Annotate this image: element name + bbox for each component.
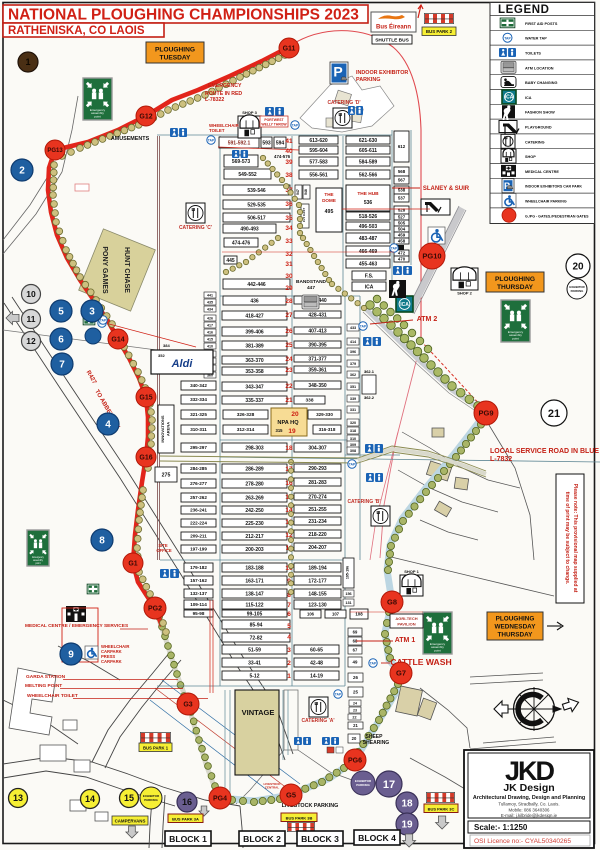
- svg-text:138-147: 138-147: [245, 591, 264, 597]
- svg-text:HUNT CHASE: HUNT CHASE: [123, 247, 130, 293]
- svg-text:FASHION SHOW: FASHION SHOW: [525, 111, 555, 115]
- svg-text:163-171: 163-171: [245, 578, 264, 584]
- svg-text:SHOP 3: SHOP 3: [242, 110, 257, 115]
- svg-text:298-303: 298-303: [245, 445, 264, 451]
- svg-text:22: 22: [352, 715, 356, 719]
- svg-text:99-105: 99-105: [247, 611, 263, 617]
- svg-text:528: 528: [398, 208, 406, 213]
- svg-text:PG9: PG9: [478, 409, 493, 418]
- svg-text:L-7832: L-7832: [490, 456, 512, 463]
- svg-text:428-431: 428-431: [308, 312, 327, 318]
- svg-text:7: 7: [287, 602, 291, 609]
- svg-text:204-207: 204-207: [308, 545, 327, 551]
- svg-text:PONY GAMES: PONY GAMES: [101, 246, 108, 294]
- svg-text:584-589: 584-589: [359, 159, 378, 165]
- svg-text:5: 5: [287, 623, 291, 630]
- svg-text:329-330: 329-330: [316, 412, 333, 417]
- svg-text:39: 39: [285, 159, 293, 166]
- svg-text:point: point: [36, 562, 41, 565]
- svg-text:470: 470: [398, 257, 406, 262]
- svg-text:379: 379: [350, 362, 356, 366]
- svg-text:67: 67: [353, 648, 358, 653]
- svg-text:BUS PARK 3B: BUS PARK 3B: [286, 816, 313, 821]
- svg-text:BLOCK 2: BLOCK 2: [243, 834, 281, 844]
- svg-text:414: 414: [350, 340, 357, 344]
- svg-text:518-526: 518-526: [359, 214, 378, 220]
- svg-text:321-325: 321-325: [190, 412, 207, 417]
- svg-text:MEDICAL CENTRE: MEDICAL CENTRE: [525, 170, 559, 174]
- svg-text:TAP: TAP: [349, 463, 356, 467]
- svg-text:TAP: TAP: [335, 693, 342, 697]
- svg-text:GARDA STATION: GARDA STATION: [26, 674, 66, 680]
- svg-text:281-283: 281-283: [308, 480, 327, 486]
- svg-text:TAP: TAP: [100, 319, 107, 323]
- svg-text:567: 567: [398, 178, 406, 183]
- svg-text:BUS PARK 3C: BUS PARK 3C: [428, 807, 455, 812]
- svg-text:568: 568: [398, 169, 406, 174]
- svg-text:506-517: 506-517: [247, 215, 266, 221]
- svg-text:426: 426: [207, 316, 213, 320]
- svg-text:22: 22: [285, 383, 293, 390]
- svg-text:594: 594: [276, 140, 285, 146]
- svg-text:MELTING POINT: MELTING POINT: [25, 683, 62, 689]
- svg-text:point: point: [434, 649, 441, 653]
- svg-text:25: 25: [353, 690, 358, 695]
- svg-text:THURSDAY: THURSDAY: [497, 284, 534, 291]
- svg-text:PG10: PG10: [422, 252, 441, 261]
- svg-text:ARENA: ARENA: [166, 422, 171, 436]
- svg-text:569-573: 569-573: [232, 159, 251, 165]
- svg-text:359-361: 359-361: [308, 367, 327, 373]
- svg-text:132-137: 132-137: [190, 591, 207, 596]
- svg-text:441: 441: [207, 293, 213, 297]
- svg-text:G14: G14: [111, 337, 124, 344]
- svg-text:BUS PARK 3A: BUS PARK 3A: [172, 817, 199, 822]
- svg-text:231-234: 231-234: [308, 519, 327, 525]
- svg-text:331: 331: [350, 408, 356, 412]
- svg-text:332-334: 332-334: [190, 397, 207, 402]
- svg-text:PLOUGHING: PLOUGHING: [496, 616, 535, 623]
- svg-text:593: 593: [262, 140, 271, 146]
- svg-text:36: 36: [285, 201, 293, 208]
- svg-text:5: 5: [58, 307, 64, 318]
- svg-text:LOCAL SERVICE ROAD IN BLUE: LOCAL SERVICE ROAD IN BLUE: [490, 448, 599, 455]
- svg-text:PARKING: PARKING: [144, 798, 158, 802]
- svg-text:TAP: TAP: [391, 247, 398, 251]
- svg-text:106: 106: [307, 612, 315, 617]
- svg-text:595-604: 595-604: [309, 148, 328, 154]
- svg-text:SHUTTLE BUS: SHUTTLE BUS: [375, 38, 409, 44]
- svg-text:352: 352: [158, 353, 165, 358]
- svg-text:21: 21: [353, 723, 358, 728]
- svg-text:BUS PARK 2: BUS PARK 2: [426, 29, 453, 34]
- svg-text:605-611: 605-611: [359, 148, 377, 154]
- svg-text:577-583: 577-583: [309, 159, 328, 165]
- svg-text:CENTRAL: CENTRAL: [265, 786, 279, 790]
- svg-text:315: 315: [276, 428, 284, 433]
- svg-text:447: 447: [307, 285, 315, 291]
- svg-text:CATERING 'D': CATERING 'D': [327, 100, 360, 106]
- svg-text:24: 24: [285, 356, 293, 363]
- svg-text:BANDSTAND: BANDSTAND: [296, 279, 327, 285]
- svg-text:THE HUB: THE HUB: [357, 191, 379, 197]
- svg-text:362.1: 362.1: [364, 369, 375, 374]
- svg-text:613-620: 613-620: [309, 138, 328, 144]
- svg-text:189-194: 189-194: [308, 565, 327, 571]
- svg-text:474-476: 474-476: [232, 240, 251, 246]
- svg-text:BLOCK 3: BLOCK 3: [301, 834, 339, 844]
- svg-text:362.2: 362.2: [364, 395, 375, 400]
- svg-text:340-342: 340-342: [190, 383, 207, 388]
- svg-text:NPA HQ: NPA HQ: [277, 420, 299, 426]
- svg-text:AGRI-TECH: AGRI-TECH: [395, 616, 417, 621]
- svg-text:148-155: 148-155: [308, 591, 327, 597]
- svg-text:20: 20: [291, 411, 299, 418]
- svg-text:309: 309: [350, 443, 356, 447]
- svg-text:AMUSEMENTS: AMUSEMENTS: [111, 136, 150, 142]
- svg-text:10: 10: [26, 289, 36, 299]
- svg-text:445: 445: [226, 258, 235, 264]
- svg-text:21: 21: [285, 397, 293, 404]
- svg-text:474-576: 474-576: [274, 154, 291, 159]
- svg-text:SLANEY & SUIR: SLANEY & SUIR: [423, 186, 470, 192]
- svg-text:WHEELCHAIR TOILET: WHEELCHAIR TOILET: [27, 693, 78, 699]
- svg-text:29: 29: [285, 285, 293, 292]
- svg-text:529-535: 529-535: [247, 202, 266, 208]
- svg-text:2: 2: [19, 166, 25, 177]
- svg-text:209-211: 209-211: [190, 534, 207, 539]
- svg-text:41: 41: [285, 138, 293, 145]
- svg-text:31: 31: [285, 261, 293, 268]
- svg-text:DOME: DOME: [322, 198, 336, 203]
- svg-text:4: 4: [105, 420, 111, 431]
- svg-text:49: 49: [353, 660, 358, 665]
- svg-text:8: 8: [99, 536, 105, 547]
- svg-text:Architectural Drawing, Design: Architectural Drawing, Design and Planni…: [473, 795, 585, 801]
- svg-text:BLOCK 4: BLOCK 4: [358, 833, 396, 843]
- svg-text:L-78322: L-78322: [205, 97, 224, 103]
- svg-text:549-552: 549-552: [238, 172, 257, 178]
- svg-text:F.S.: F.S.: [365, 273, 374, 279]
- svg-text:263-269: 263-269: [245, 495, 264, 501]
- svg-text:537: 537: [398, 196, 406, 201]
- svg-text:318: 318: [350, 429, 356, 433]
- svg-text:2: 2: [287, 660, 291, 667]
- svg-text:304-307: 304-307: [308, 445, 327, 451]
- svg-text:222-224: 222-224: [190, 521, 207, 526]
- svg-text:4: 4: [287, 634, 291, 641]
- svg-text:ICA: ICA: [400, 302, 409, 308]
- svg-text:353-358: 353-358: [245, 369, 264, 375]
- svg-text:504: 504: [398, 227, 406, 232]
- svg-text:417: 417: [207, 323, 213, 327]
- svg-text:PARKING: PARKING: [356, 783, 370, 787]
- svg-text:416: 416: [207, 330, 213, 334]
- svg-text:point: point: [512, 337, 519, 341]
- svg-text:326-328: 326-328: [237, 412, 255, 418]
- svg-text:point: point: [94, 115, 101, 119]
- svg-text:18: 18: [285, 445, 293, 452]
- svg-text:TUESDAY: TUESDAY: [160, 55, 192, 62]
- svg-text:G8: G8: [387, 598, 397, 607]
- svg-text:415: 415: [207, 337, 213, 341]
- svg-text:115-122: 115-122: [245, 602, 263, 608]
- svg-text:LEGEND: LEGEND: [498, 4, 550, 16]
- svg-text:P: P: [333, 64, 342, 80]
- svg-text:G7: G7: [396, 669, 406, 678]
- svg-text:172-177: 172-177: [308, 578, 327, 584]
- svg-text:PG6: PG6: [348, 758, 362, 765]
- svg-text:ATM LOCATION: ATM LOCATION: [525, 66, 554, 70]
- svg-text:TOILETS: TOILETS: [525, 52, 541, 56]
- svg-text:34: 34: [285, 225, 293, 232]
- svg-text:G1: G1: [128, 561, 137, 568]
- svg-text:13: 13: [13, 793, 23, 803]
- svg-text:6: 6: [58, 335, 64, 346]
- svg-text:TAP: TAP: [208, 139, 215, 143]
- svg-text:SHOP 2: SHOP 2: [457, 291, 472, 296]
- svg-text:23: 23: [285, 367, 293, 374]
- svg-text:381-389: 381-389: [245, 343, 264, 349]
- svg-text:42-48: 42-48: [310, 660, 323, 666]
- svg-text:20: 20: [352, 736, 357, 741]
- svg-text:SHEARING: SHEARING: [363, 740, 390, 746]
- svg-text:436: 436: [250, 298, 259, 304]
- svg-text:30: 30: [285, 273, 293, 280]
- svg-text:363-370: 363-370: [245, 358, 264, 364]
- svg-text:OSI Licence no:- CYAL50340265: OSI Licence no:- CYAL50340265: [474, 838, 571, 845]
- svg-text:19: 19: [288, 428, 296, 435]
- svg-text:275: 275: [162, 472, 171, 478]
- svg-text:G16: G16: [139, 455, 152, 462]
- svg-text:284-285: 284-285: [190, 466, 207, 471]
- svg-text:PARKING: PARKING: [356, 77, 380, 83]
- svg-text:290-293: 290-293: [308, 466, 327, 472]
- svg-text:WELLY THROW: WELLY THROW: [261, 123, 287, 127]
- svg-text:CAMPERVANS: CAMPERVANS: [115, 819, 146, 824]
- svg-text:CATERING 'B': CATERING 'B': [347, 499, 380, 505]
- svg-text:490-493: 490-493: [240, 226, 259, 232]
- svg-text:THE: THE: [324, 192, 333, 197]
- svg-text:496-503: 496-503: [359, 224, 378, 230]
- svg-text:435: 435: [207, 300, 213, 304]
- svg-text:218-220: 218-220: [308, 532, 327, 538]
- svg-text:G15: G15: [139, 395, 152, 402]
- svg-text:time of print may be subject t: time of print may be subject to change.: [564, 492, 570, 585]
- svg-text:612: 612: [398, 144, 406, 149]
- svg-text:371-377: 371-377: [308, 356, 327, 362]
- svg-text:38: 38: [285, 172, 293, 179]
- svg-text:WEDNESDAY: WEDNESDAY: [495, 624, 537, 631]
- svg-text:TAP: TAP: [504, 36, 511, 40]
- svg-text:348-350: 348-350: [308, 383, 327, 389]
- svg-text:442-446: 442-446: [247, 282, 266, 288]
- svg-text:Tullamoy, Stradbally, Co. Laoi: Tullamoy, Stradbally, Co. Laois.: [498, 802, 559, 807]
- svg-text:621-630: 621-630: [359, 138, 378, 144]
- svg-text:320: 320: [350, 421, 356, 425]
- svg-text:123-130: 123-130: [308, 602, 327, 608]
- svg-text:ICA: ICA: [505, 95, 514, 101]
- svg-text:VINTAGE: VINTAGE: [242, 708, 275, 717]
- svg-text:1: 1: [25, 57, 30, 67]
- svg-text:12: 12: [26, 336, 36, 346]
- svg-text:G11: G11: [283, 46, 296, 53]
- svg-text:335-337: 335-337: [245, 398, 264, 404]
- svg-text:242-250: 242-250: [245, 508, 264, 514]
- svg-text:495: 495: [325, 209, 334, 215]
- svg-text:251-255: 251-255: [308, 507, 327, 513]
- svg-text:INDOOR EXHIBITOR: INDOOR EXHIBITOR: [356, 70, 408, 76]
- svg-text:17: 17: [383, 779, 395, 791]
- svg-text:TAP: TAP: [292, 124, 299, 128]
- svg-text:PAVILION: PAVILION: [397, 622, 415, 627]
- svg-text:INNOVATIONS: INNOVATIONS: [160, 415, 165, 443]
- svg-text:433: 433: [350, 326, 356, 330]
- svg-text:Scale:- 1:1250: Scale:- 1:1250: [474, 823, 528, 832]
- svg-text:276-277: 276-277: [190, 481, 207, 486]
- svg-text:3: 3: [89, 307, 95, 318]
- svg-text:Emergency: Emergency: [32, 556, 44, 559]
- svg-text:339: 339: [350, 397, 356, 401]
- svg-text:131: 131: [345, 601, 351, 605]
- svg-text:MEDICAL CENTRE / EMERGENCY SER: MEDICAL CENTRE / EMERGENCY SERVICES: [25, 623, 129, 629]
- svg-text:BLOCK 1: BLOCK 1: [169, 834, 207, 844]
- svg-text:19: 19: [401, 820, 413, 831]
- svg-text:60-65: 60-65: [310, 647, 323, 653]
- svg-text:107: 107: [332, 612, 340, 617]
- svg-text:455-463: 455-463: [359, 261, 378, 267]
- svg-text:95-98: 95-98: [193, 611, 205, 616]
- svg-text:PLOUGHING: PLOUGHING: [155, 47, 195, 54]
- svg-text:3: 3: [287, 647, 291, 654]
- svg-text:PARKING: PARKING: [571, 289, 584, 293]
- svg-text:418-427: 418-427: [245, 313, 264, 319]
- svg-text:195-196: 195-196: [346, 566, 350, 579]
- svg-text:26: 26: [285, 328, 293, 335]
- svg-text:410: 410: [207, 344, 213, 348]
- svg-text:26: 26: [353, 675, 358, 680]
- svg-text:35: 35: [285, 215, 293, 222]
- svg-text:27: 27: [285, 312, 293, 319]
- svg-text:21: 21: [548, 408, 560, 420]
- svg-text:51-59: 51-59: [248, 647, 261, 653]
- svg-text:INDOOR EXHIBITORS CAR PARK: INDOOR EXHIBITORS CAR PARK: [525, 185, 582, 189]
- svg-text:527: 527: [398, 215, 406, 220]
- svg-text:FIRST AID POSTS: FIRST AID POSTS: [525, 22, 558, 26]
- svg-text:20: 20: [572, 262, 584, 273]
- svg-text:PG13: PG13: [47, 148, 63, 154]
- svg-text:200-203: 200-203: [245, 547, 264, 553]
- svg-text:197-199: 197-199: [190, 547, 207, 552]
- svg-text:11: 11: [27, 314, 36, 324]
- svg-text:548: 548: [304, 189, 308, 195]
- svg-text:Mobile: 086 3640306: Mobile: 086 3640306: [508, 808, 550, 813]
- svg-text:15: 15: [124, 793, 134, 803]
- svg-text:396: 396: [350, 350, 356, 354]
- svg-text:PORTWEST: PORTWEST: [264, 118, 284, 122]
- svg-text:472: 472: [398, 251, 406, 256]
- svg-text:407-413: 407-413: [308, 328, 327, 334]
- svg-text:236-241: 236-241: [190, 508, 207, 513]
- svg-text:286-289: 286-289: [245, 466, 264, 472]
- svg-text:562-566: 562-566: [359, 172, 378, 178]
- svg-text:NATIONAL PLOUGHING CHAMPIONSHI: NATIONAL PLOUGHING CHAMPIONSHIPS 2023: [8, 7, 359, 24]
- svg-text:E-mail: j.kilbride@jkdesign.ie: E-mail: j.kilbride@jkdesign.ie: [501, 813, 558, 818]
- svg-text:109-114: 109-114: [190, 602, 207, 607]
- svg-text:THURSDAY: THURSDAY: [498, 632, 534, 639]
- svg-text:399-406: 399-406: [245, 329, 264, 335]
- svg-text:362: 362: [350, 373, 356, 377]
- svg-text:33-41: 33-41: [248, 660, 261, 666]
- svg-text:PG2: PG2: [148, 606, 162, 613]
- svg-text:384: 384: [163, 343, 170, 348]
- svg-text:OFFICE: OFFICE: [156, 548, 172, 553]
- svg-text:547: 547: [296, 189, 300, 195]
- svg-text:483-487: 483-487: [359, 236, 378, 242]
- svg-text:295-297: 295-297: [190, 445, 207, 450]
- svg-text:183-188: 183-188: [245, 565, 264, 571]
- svg-text:SHOP: SHOP: [525, 155, 536, 159]
- svg-text:CATERING: CATERING: [525, 140, 545, 144]
- svg-text:Bus Éireann: Bus Éireann: [376, 23, 411, 31]
- svg-text:G5: G5: [286, 791, 296, 800]
- svg-text:278-280: 278-280: [245, 481, 264, 487]
- svg-text:Please note: This provisional: Please note: This provisional map suppli…: [572, 484, 578, 593]
- svg-text:316-318: 316-318: [319, 427, 336, 432]
- svg-text:6: 6: [287, 611, 291, 618]
- svg-text:TAP: TAP: [370, 662, 377, 666]
- svg-text:CATERING 'A': CATERING 'A': [301, 718, 334, 724]
- svg-text:156: 156: [345, 592, 351, 596]
- svg-text:16: 16: [182, 797, 192, 807]
- svg-text:459: 459: [398, 233, 406, 238]
- svg-text:PLOUGHING: PLOUGHING: [495, 276, 535, 283]
- svg-text:338: 338: [305, 398, 313, 404]
- svg-text:WATER TAP: WATER TAP: [525, 37, 547, 41]
- svg-text:TOILET: TOILET: [209, 128, 225, 133]
- svg-text:72-82: 72-82: [250, 635, 263, 641]
- svg-text:TAP: TAP: [360, 325, 367, 329]
- svg-text:G./PG - GATES./PEDESTRIAN GATE: G./PG - GATES./PEDESTRIAN GATES: [525, 214, 589, 218]
- svg-text:WHEELCHAIR PARKING: WHEELCHAIR PARKING: [525, 200, 567, 204]
- svg-text:24: 24: [353, 701, 357, 705]
- svg-text:1: 1: [287, 673, 291, 680]
- svg-text:351: 351: [350, 385, 356, 389]
- svg-text:157-162: 157-162: [190, 578, 207, 583]
- svg-text:23: 23: [353, 708, 357, 712]
- svg-text:SHOP 1: SHOP 1: [404, 569, 419, 574]
- svg-text:556-561: 556-561: [309, 172, 328, 178]
- svg-text:18: 18: [401, 799, 413, 810]
- svg-text:7: 7: [59, 360, 65, 371]
- svg-text:310-311: 310-311: [190, 427, 207, 432]
- svg-text:343-347: 343-347: [245, 384, 264, 390]
- svg-text:179-182: 179-182: [190, 565, 207, 570]
- svg-text:85-94: 85-94: [250, 622, 263, 628]
- svg-text:ICA: ICA: [525, 96, 532, 100]
- svg-text:PG4: PG4: [213, 796, 227, 803]
- svg-text:BUS PARK 1: BUS PARK 1: [143, 746, 169, 751]
- svg-text:BABY CHANGING: BABY CHANGING: [525, 81, 557, 85]
- svg-text:5-12: 5-12: [249, 673, 259, 679]
- svg-text:536: 536: [364, 200, 373, 206]
- svg-text:25: 25: [285, 342, 293, 349]
- svg-text:CARPARK: CARPARK: [101, 659, 122, 664]
- svg-text:14: 14: [85, 794, 95, 804]
- svg-text:434: 434: [207, 307, 213, 311]
- svg-text:212-217: 212-217: [245, 534, 264, 540]
- svg-text:257-262: 257-262: [190, 495, 207, 500]
